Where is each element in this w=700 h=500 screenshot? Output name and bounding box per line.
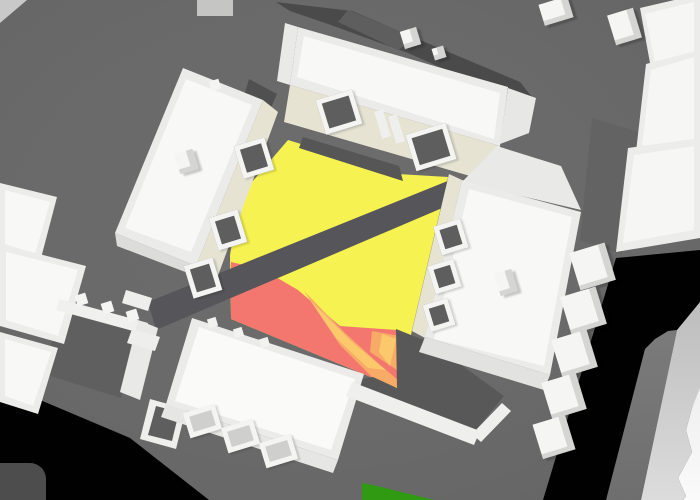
- rounded-block: [0, 463, 46, 500]
- rooftop-slab-nw: [197, 0, 233, 16]
- rooftop-cube: [538, 0, 573, 26]
- rooftop-cube: [607, 8, 642, 46]
- viewport-3d[interactable]: [0, 0, 700, 500]
- crenel-tooth: [75, 293, 89, 307]
- crenel-tooth: [101, 301, 115, 315]
